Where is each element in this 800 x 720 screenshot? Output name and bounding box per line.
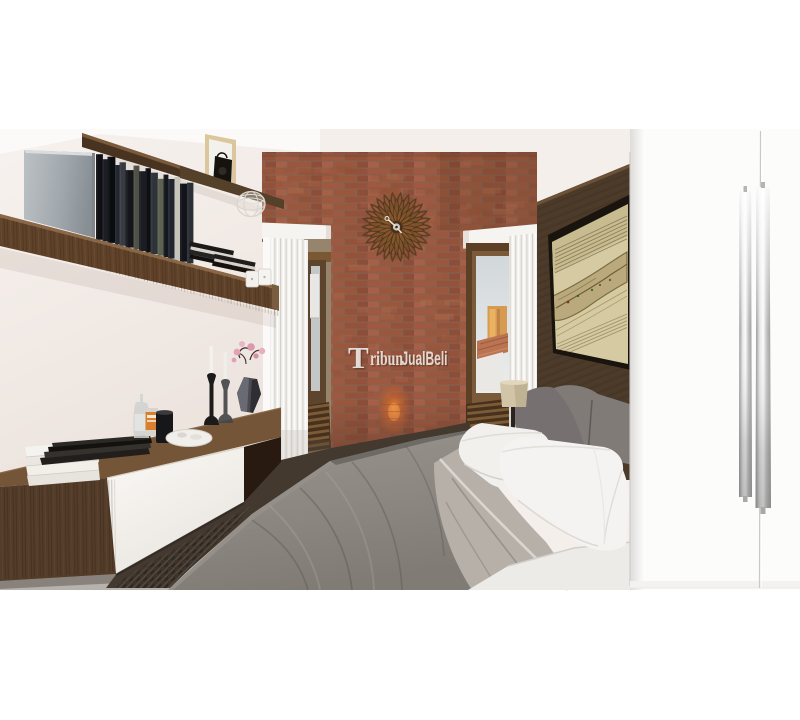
- svg-text:ribun: ribun: [370, 348, 403, 370]
- svg-text:T: T: [348, 340, 369, 375]
- svg-text:JualBeli: JualBeli: [402, 349, 448, 370]
